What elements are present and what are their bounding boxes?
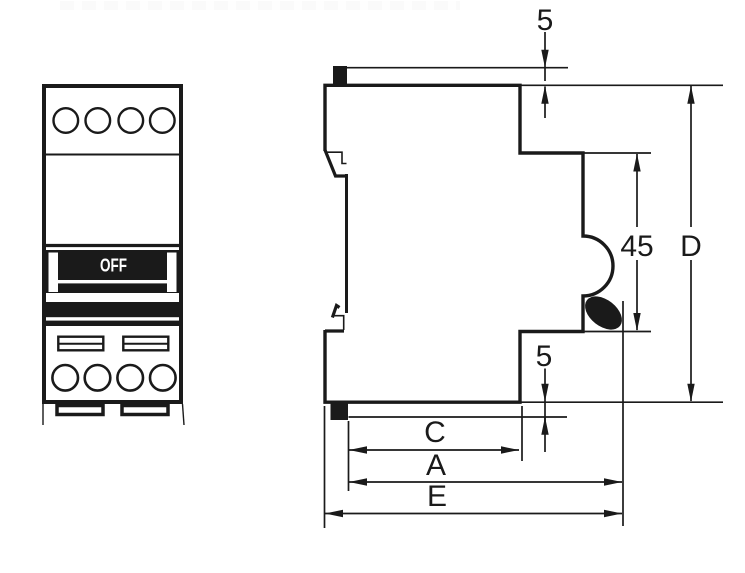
toggle-slot-left xyxy=(49,253,59,293)
arrow-right-icon xyxy=(604,478,622,485)
front-mounting-tabs xyxy=(43,404,184,425)
front-black-band-lower xyxy=(44,321,181,326)
dim-label-depth-a: A xyxy=(426,449,446,482)
terminal-hole xyxy=(86,108,111,133)
side-tab-top xyxy=(333,66,347,86)
terminal-hole xyxy=(119,108,144,133)
side-view xyxy=(325,66,628,420)
arrow-left-icon xyxy=(325,510,343,517)
front-black-band-upper xyxy=(44,302,181,317)
din-clip-top xyxy=(325,150,347,313)
front-terminal-screws xyxy=(58,337,168,351)
breaker-dimension-drawing: OFF xyxy=(0,0,745,573)
arrow-right-icon xyxy=(604,510,622,517)
arrow-down-icon xyxy=(541,50,548,68)
arrow-left-icon xyxy=(349,446,367,453)
dim-label-bottom-clearance: 5 xyxy=(536,340,553,373)
terminal-hole xyxy=(117,365,143,391)
dim-front-height: 45 xyxy=(620,154,653,332)
front-view: OFF xyxy=(43,86,184,425)
dim-label-overall-height: D xyxy=(680,230,702,263)
front-bottom-terminals xyxy=(52,365,175,391)
toggle-handle-gap xyxy=(58,280,168,283)
side-whisker-right xyxy=(183,404,185,425)
toggle-assembly: OFF xyxy=(44,246,181,294)
technical-drawing-page: OFF xyxy=(0,0,745,573)
terminal-hole xyxy=(150,365,176,391)
dim-top-clearance: 5 xyxy=(537,4,554,118)
dim-depth-a: A xyxy=(349,449,622,486)
arrow-up-icon xyxy=(687,86,694,104)
arrow-up-icon xyxy=(541,86,548,104)
terminal-hole xyxy=(150,108,175,133)
arrow-up-icon xyxy=(633,154,640,172)
toggle-off-label: OFF xyxy=(100,256,127,276)
arrow-down-icon xyxy=(541,384,548,402)
dim-label-depth-c: C xyxy=(424,416,446,449)
front-top-terminals xyxy=(54,108,175,133)
terminal-hole xyxy=(85,365,111,391)
side-body-outline xyxy=(325,85,613,402)
terminal-hole xyxy=(52,365,78,391)
extension-lines xyxy=(325,68,724,528)
din-clip-bottom xyxy=(325,306,344,332)
arrow-down-icon xyxy=(687,384,694,402)
dim-depth-e: E xyxy=(325,480,622,517)
dim-bottom-clearance: 5 xyxy=(536,340,553,452)
clip-notch xyxy=(333,316,344,330)
arrow-up-icon xyxy=(541,417,548,435)
dim-overall-height: D xyxy=(680,86,702,402)
dim-label-depth-e: E xyxy=(427,480,447,513)
mounting-tab xyxy=(122,406,168,415)
side-tab-bottom xyxy=(331,402,349,420)
terminal-hole xyxy=(54,108,79,133)
dimension-annotations: 5 45 D xyxy=(325,4,724,528)
arrow-left-icon xyxy=(349,478,367,485)
mounting-tab xyxy=(57,406,103,415)
arrow-down-icon xyxy=(633,313,640,331)
toggle-slot-right xyxy=(167,253,177,293)
arrow-right-icon xyxy=(501,446,519,453)
dim-label-front-height: 45 xyxy=(620,230,653,263)
dim-label-top-clearance: 5 xyxy=(537,4,554,37)
